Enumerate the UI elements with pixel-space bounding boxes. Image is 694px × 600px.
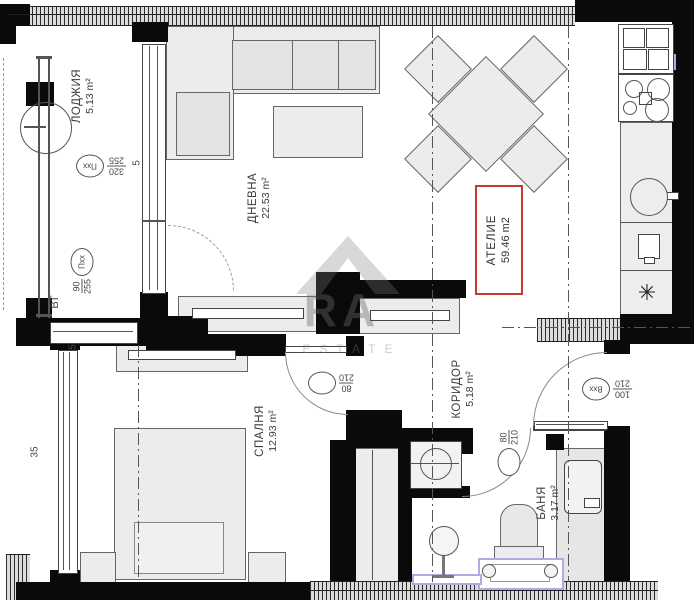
wall-segment [0,24,16,44]
kitchen-cabinet-box [623,49,647,70]
axis-line [502,327,692,328]
railing-cap [36,56,52,59]
bath-door-swing-arc [462,428,531,497]
wall-corridor-top [346,280,466,298]
railing-line [38,58,40,318]
wall-divider [310,590,658,591]
room-name: ЛОДЖИЯ [71,69,84,123]
marker-circle: Пхх [71,248,94,276]
wall-pier [546,434,564,450]
bed-pillow-area [134,522,224,574]
axis-line [138,345,139,581]
room-label-atelier: АТЕЛИЕ 59.46 m2 [475,185,523,295]
marker-vt-window: 90 255 Пхх [71,248,94,294]
room-name: ДНЕВНА [247,173,260,223]
wall-bath-right [604,426,630,583]
sofa-cushion [232,40,294,90]
window-glass-line [157,46,158,290]
marker-bedroom-door: 80 210 [308,372,354,395]
window-glass-line [53,331,133,332]
room-label-corridor: КОРИДОР 5.18 m² [451,359,477,418]
wardrobe-door-line [372,450,373,580]
marker-loggia-window: 320 255 Пхх [76,155,126,178]
vt-window [50,322,138,344]
plot-boundary-line [3,58,4,310]
balcony-door-swing-arc [168,225,234,291]
sofa-cushion [176,92,230,156]
room-area: 59.46 m2 [499,187,513,293]
washing-machine-drum [420,448,452,480]
marker-circle [498,448,521,476]
washing-machine-line [411,463,459,464]
room-area: 3.17 m² [549,485,562,521]
room-area: 5.18 m² [464,359,477,418]
size-value: 100 [613,389,632,400]
size-value: 90 [72,280,83,294]
coffee-table [273,106,363,158]
room-area: 12.93 m² [267,405,280,457]
toilet-bowl [500,504,538,552]
bathtub-drain [482,564,496,578]
wall-pier [346,336,364,356]
shower-handle [584,498,600,508]
size-value: 210 [510,430,520,445]
window-divider [142,220,166,222]
room-label-bedroom: СПАЛНЯ 12.93 m² [254,405,280,457]
wall-right [672,0,694,344]
room-area: 5.13 m² [84,69,97,123]
window-glass-line [69,352,70,570]
dimension-label: 35 [30,446,41,457]
size-value: 255 [109,156,124,166]
dimension-label: 5 [132,160,143,166]
size-fraction: 320 255 [107,156,126,177]
wall-segment [346,410,402,448]
room-name: БАНЯ [536,485,549,521]
room-name: СПАЛНЯ [254,405,267,457]
dresser-slot [128,350,236,360]
kitchen-cabinet-box [623,28,645,48]
column-symbol [20,102,72,154]
counter-appliance-tab [644,257,655,264]
bedroom-window [58,350,78,574]
wall-pier [604,340,630,354]
wall-segment [330,440,356,582]
marker-circle: Вхх [582,378,610,401]
size-value: 320 [107,166,126,177]
axis-line [568,26,569,582]
counter-divider [620,270,672,271]
pedestal-sink [429,526,459,556]
room-area: 22.53 m² [260,173,273,223]
railing-cap [36,314,52,317]
balcony-window [142,44,166,294]
kitchen-cabinet-box [646,28,669,48]
kitchen-sink [630,178,668,216]
fridge-icon: ✳ [638,280,656,306]
wall-column [132,22,168,42]
window-glass-line [63,352,64,570]
vt-label: ВТ [49,295,61,308]
wall-insulated [537,318,621,342]
window-glass-line [149,46,150,290]
size-value: 80 [499,431,510,445]
burner [645,98,669,122]
wall-top-insulated [8,6,575,26]
wall-segment [398,498,412,583]
marker-entrance-door: 100 210 Вхх [582,378,632,401]
marker-bath-door: 80 210 [498,430,521,476]
wall-corner [620,314,694,344]
bathtub-basin [490,564,550,582]
wall-bottom [16,582,310,600]
size-value: 255 [83,279,93,294]
burner [625,80,643,98]
sofa-cushion [338,40,376,90]
room-name: АТЕЛИЕ [485,187,499,293]
sofa-cushion [292,40,340,90]
dimension-label: 5 [68,344,79,350]
size-fraction: 100 210 [613,379,632,400]
burner [623,101,637,115]
railing-line [48,58,50,318]
size-value: 210 [615,379,630,389]
kitchen-cabinet-box [648,49,669,70]
bathtub-drain [544,564,558,578]
counter-divider [620,222,672,223]
size-fraction: 90 255 [72,279,93,294]
marker-circle: Пхх [76,155,104,178]
hall-cabinet-slot [370,310,450,321]
marker-circle [308,372,336,395]
column-tick [24,126,46,128]
room-name: КОРИДОР [451,359,464,418]
floor-plan: ✳ ЛОДЖИЯ 5.13 m² ДНЕВНА 22.53 m² АТЕЛИЕ … [0,0,694,600]
size-fraction: 80 210 [499,430,520,445]
size-value: 80 [340,383,354,394]
size-fraction: 80 210 [339,373,354,394]
room-label-living: ДНЕВНА 22.53 m² [247,173,273,223]
size-value: 210 [339,373,354,383]
axis-line [432,26,433,582]
wall-segment [0,4,30,26]
wall-divider [8,14,575,15]
tv-stand-slot [192,308,304,319]
sink-pedestal-stem [442,554,445,575]
room-label-bath: БАНЯ 3.17 m² [536,485,562,521]
counter-appliance [638,234,660,259]
room-label-loggia: ЛОДЖИЯ 5.13 m² [71,69,97,123]
sink-pedestal-foot [432,575,454,578]
